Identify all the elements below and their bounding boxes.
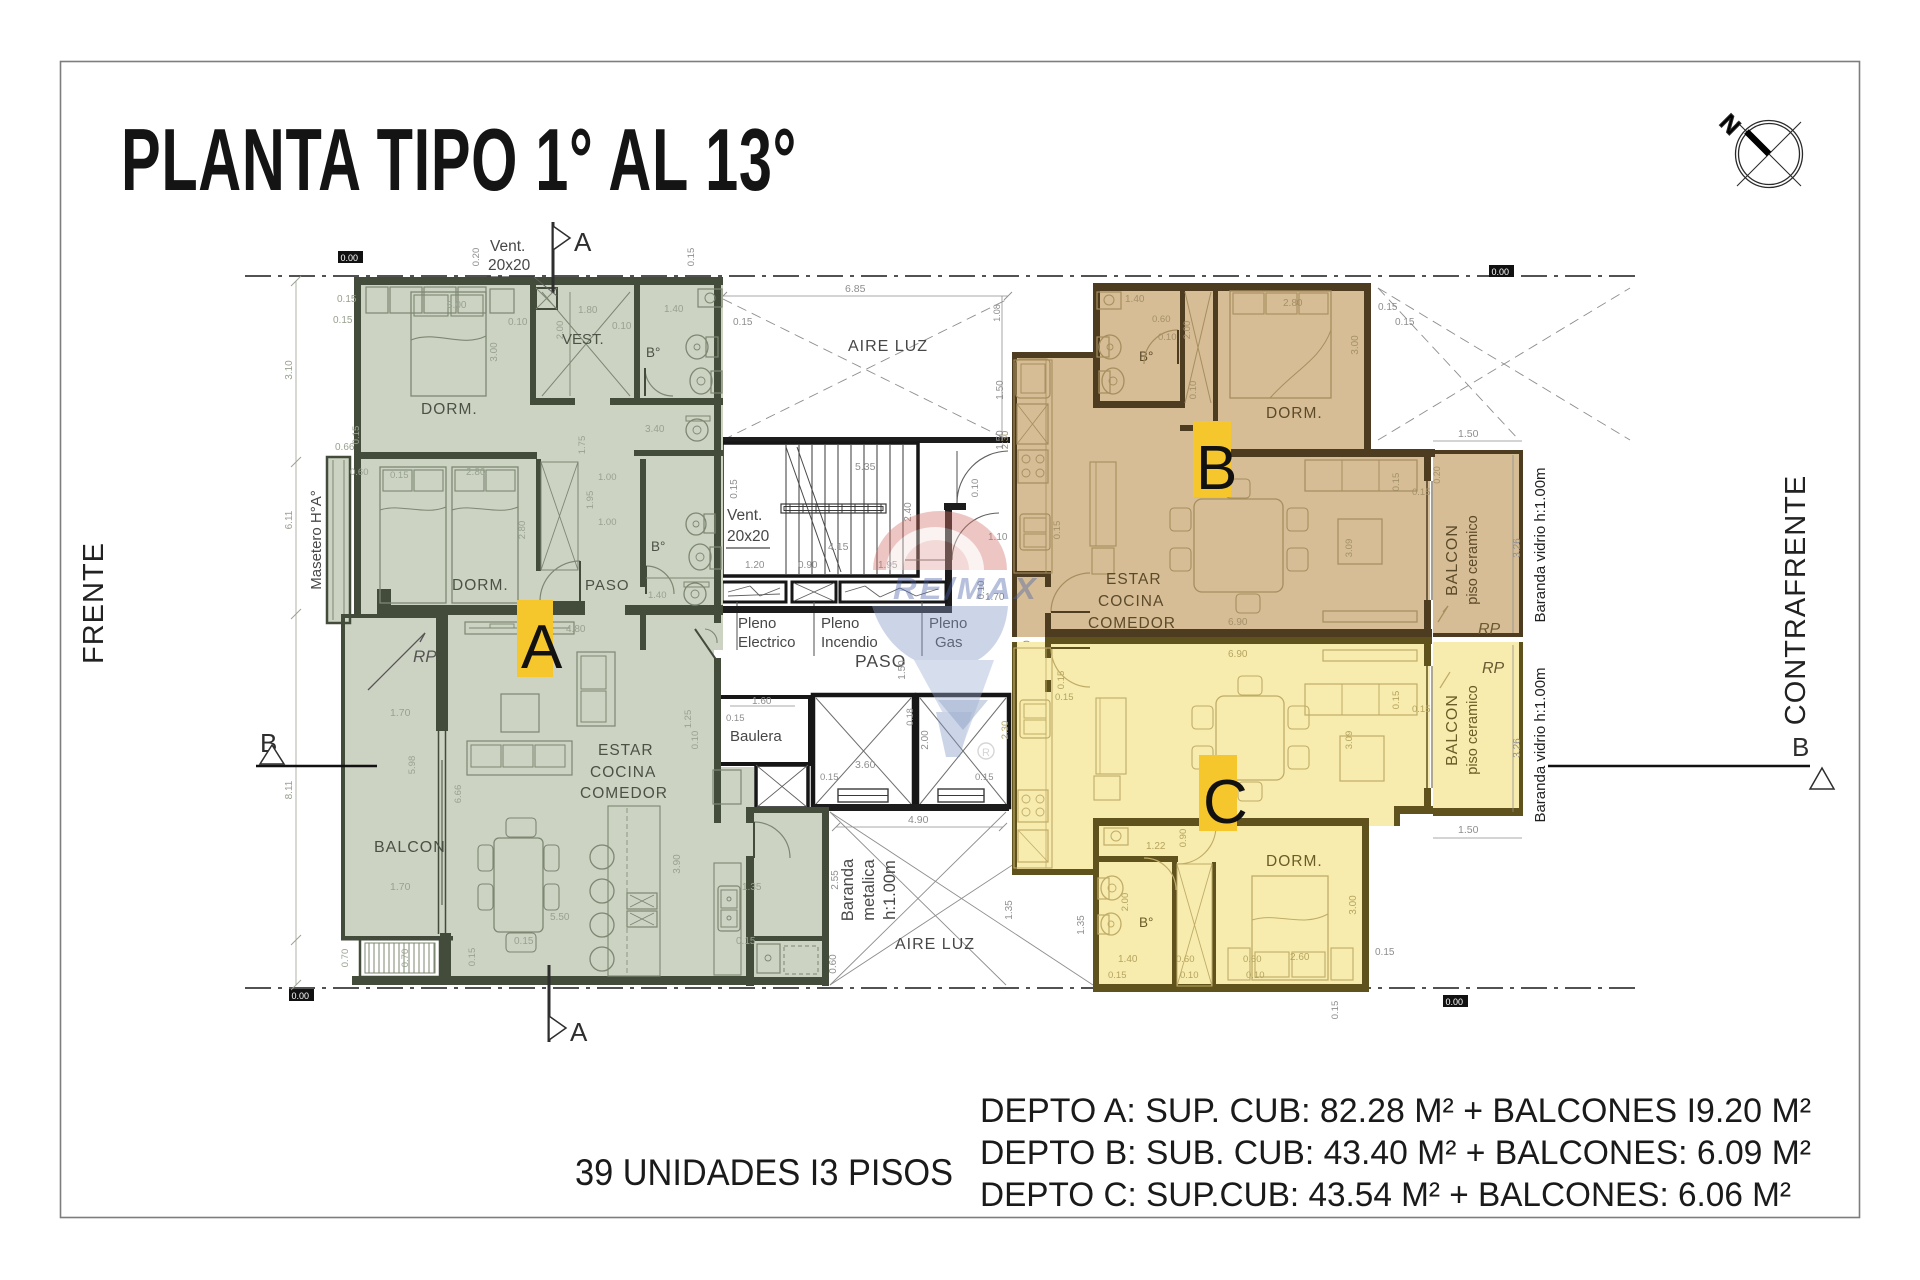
svg-text:Vent.: Vent. bbox=[727, 507, 762, 524]
svg-text:0.10: 0.10 bbox=[508, 317, 528, 328]
svg-text:h:1.00m: h:1.00m bbox=[881, 860, 899, 920]
svg-text:0.15: 0.15 bbox=[1391, 473, 1402, 492]
svg-text:3.00: 3.00 bbox=[1348, 895, 1359, 915]
svg-text:0.70: 0.70 bbox=[340, 949, 351, 968]
svg-text:piso ceramico: piso ceramico bbox=[1465, 515, 1481, 604]
svg-text:Masetero H°A°: Masetero H°A° bbox=[308, 490, 325, 590]
svg-text:COCINA: COCINA bbox=[590, 764, 656, 781]
svg-text:2.00: 2.00 bbox=[1182, 321, 1193, 340]
svg-text:A: A bbox=[521, 613, 563, 682]
svg-text:0.15: 0.15 bbox=[1391, 691, 1402, 710]
svg-text:2.60: 2.60 bbox=[1290, 952, 1310, 963]
svg-text:2.80: 2.80 bbox=[1283, 298, 1303, 309]
svg-text:1.75: 1.75 bbox=[577, 436, 588, 455]
svg-text:0.60: 0.60 bbox=[1243, 954, 1262, 965]
svg-text:0.15: 0.15 bbox=[686, 248, 697, 267]
svg-text:DEPTO C: SUP.CUB: 43.54 M² + B: DEPTO C: SUP.CUB: 43.54 M² + BALCONES: 6… bbox=[980, 1176, 1791, 1214]
svg-text:0.66: 0.66 bbox=[335, 442, 355, 453]
svg-text:2.80: 2.80 bbox=[466, 467, 486, 478]
svg-text:1.35: 1.35 bbox=[1004, 900, 1015, 920]
svg-text:6.85: 6.85 bbox=[845, 283, 866, 295]
svg-text:A: A bbox=[570, 1017, 588, 1047]
svg-text:8.11: 8.11 bbox=[284, 780, 295, 799]
svg-text:0.60: 0.60 bbox=[1176, 954, 1195, 965]
svg-text:B°: B° bbox=[1139, 915, 1153, 930]
svg-text:PASO: PASO bbox=[585, 577, 630, 594]
svg-text:0.15: 0.15 bbox=[1378, 302, 1398, 313]
svg-text:0.10: 0.10 bbox=[1180, 970, 1199, 981]
svg-text:0.15: 0.15 bbox=[1056, 671, 1067, 690]
svg-text:1.20: 1.20 bbox=[745, 560, 765, 571]
svg-text:1.50: 1.50 bbox=[995, 430, 1006, 450]
svg-text:0.10: 0.10 bbox=[1158, 332, 1177, 343]
svg-text:0.15: 0.15 bbox=[726, 713, 745, 724]
svg-text:3.09: 3.09 bbox=[1344, 539, 1355, 558]
svg-text:1.50: 1.50 bbox=[897, 660, 908, 680]
svg-text:R: R bbox=[982, 747, 990, 759]
svg-text:0.20: 0.20 bbox=[1432, 466, 1442, 484]
svg-text:1.50: 1.50 bbox=[1458, 428, 1479, 440]
svg-text:0.15: 0.15 bbox=[337, 294, 357, 305]
svg-text:6.90: 6.90 bbox=[1228, 617, 1248, 628]
svg-text:0.15: 0.15 bbox=[1395, 317, 1415, 328]
svg-text:piso ceramico: piso ceramico bbox=[1465, 685, 1481, 774]
svg-text:0.70: 0.70 bbox=[400, 949, 411, 968]
svg-text:Baranda vidrio h:1.00m: Baranda vidrio h:1.00m bbox=[1532, 667, 1549, 822]
svg-text:C: C bbox=[1203, 768, 1248, 837]
svg-text:Pleno: Pleno bbox=[738, 615, 776, 632]
svg-text:1.00: 1.00 bbox=[598, 472, 617, 483]
svg-text:3.40: 3.40 bbox=[645, 424, 665, 435]
svg-text:39 UNIDADES I3 PISOS: 39 UNIDADES I3 PISOS bbox=[575, 1152, 953, 1193]
svg-text:ESTAR: ESTAR bbox=[1106, 571, 1162, 588]
svg-text:0.15: 0.15 bbox=[733, 317, 753, 328]
svg-text:1.40: 1.40 bbox=[1125, 294, 1145, 305]
svg-text:RP: RP bbox=[413, 647, 437, 666]
svg-text:1.22: 1.22 bbox=[1146, 841, 1166, 852]
svg-text:Incendio: Incendio bbox=[821, 634, 878, 651]
svg-text:0.15: 0.15 bbox=[1412, 487, 1431, 498]
svg-text:0.60: 0.60 bbox=[828, 954, 839, 974]
svg-text:Baulera: Baulera bbox=[730, 728, 782, 745]
svg-text:Baranda vidrio h:1.00m: Baranda vidrio h:1.00m bbox=[1532, 467, 1549, 622]
svg-text:2.80: 2.80 bbox=[517, 521, 528, 540]
svg-text:1.40: 1.40 bbox=[1118, 954, 1138, 965]
svg-text:20x20: 20x20 bbox=[488, 257, 531, 274]
svg-text:CONTRAFRENTE: CONTRAFRENTE bbox=[1780, 475, 1812, 725]
svg-text:5.98: 5.98 bbox=[407, 756, 418, 775]
svg-text:0.15: 0.15 bbox=[736, 936, 756, 947]
svg-text:3.00: 3.00 bbox=[447, 300, 467, 311]
svg-text:0.10: 0.10 bbox=[970, 479, 981, 498]
svg-text:0.90: 0.90 bbox=[798, 560, 818, 571]
svg-text:0.15: 0.15 bbox=[729, 479, 740, 499]
svg-text:0.20: 0.20 bbox=[471, 248, 482, 267]
svg-text:0.15: 0.15 bbox=[820, 772, 839, 783]
svg-text:3.09: 3.09 bbox=[1344, 731, 1355, 750]
svg-text:0.18: 0.18 bbox=[905, 708, 915, 726]
svg-text:ESTAR: ESTAR bbox=[598, 742, 654, 759]
svg-text:DORM.: DORM. bbox=[1266, 853, 1323, 870]
svg-text:0.15: 0.15 bbox=[467, 948, 478, 967]
svg-text:0.15: 0.15 bbox=[1108, 970, 1127, 981]
svg-text:1.08: 1.08 bbox=[992, 304, 1002, 322]
svg-text:1.25: 1.25 bbox=[683, 710, 694, 729]
svg-text:0.15: 0.15 bbox=[975, 772, 994, 783]
svg-text:BALCON: BALCON bbox=[1444, 524, 1461, 596]
svg-text:2.00: 2.00 bbox=[555, 321, 566, 340]
svg-text:5.35: 5.35 bbox=[855, 461, 876, 473]
svg-text:0.00: 0.00 bbox=[1446, 997, 1464, 1007]
svg-text:1.80: 1.80 bbox=[578, 305, 598, 316]
svg-text:0.00: 0.00 bbox=[292, 991, 310, 1001]
svg-text:DEPTO B: SUB. CUB: 43.40 M² +: DEPTO B: SUB. CUB: 43.40 M² + BALCONES: … bbox=[980, 1134, 1811, 1172]
svg-text:B°: B° bbox=[646, 345, 660, 360]
svg-text:1.70: 1.70 bbox=[390, 707, 411, 719]
svg-text:3.90: 3.90 bbox=[672, 854, 683, 874]
svg-text:1.35: 1.35 bbox=[1076, 915, 1087, 935]
svg-text:1.95: 1.95 bbox=[585, 491, 596, 510]
svg-text:20x20: 20x20 bbox=[727, 528, 770, 545]
svg-text:A: A bbox=[574, 227, 592, 257]
svg-text:0.15: 0.15 bbox=[333, 315, 353, 326]
svg-text:4.80: 4.80 bbox=[566, 624, 586, 635]
svg-text:2.00: 2.00 bbox=[920, 730, 931, 750]
svg-text:0.00: 0.00 bbox=[1492, 267, 1510, 277]
svg-text:2.30: 2.30 bbox=[1000, 721, 1011, 740]
svg-text:3.60: 3.60 bbox=[855, 759, 876, 771]
svg-text:6.11: 6.11 bbox=[284, 510, 295, 529]
svg-text:Baranda: Baranda bbox=[839, 858, 857, 921]
svg-text:Electrico: Electrico bbox=[738, 634, 796, 651]
svg-text:3.10: 3.10 bbox=[284, 360, 295, 380]
svg-text:2.00: 2.00 bbox=[1120, 893, 1131, 912]
svg-text:4.90: 4.90 bbox=[908, 814, 929, 826]
svg-text:1.00: 1.00 bbox=[598, 517, 617, 528]
svg-text:B: B bbox=[1792, 732, 1809, 762]
svg-text:3.26: 3.26 bbox=[1512, 538, 1523, 558]
svg-text:0.15: 0.15 bbox=[1375, 947, 1395, 958]
svg-text:3.00: 3.00 bbox=[1350, 335, 1361, 355]
svg-text:AIRE LUZ: AIRE LUZ bbox=[895, 936, 975, 953]
svg-text:0.15: 0.15 bbox=[1330, 1001, 1341, 1020]
svg-text:0.10: 0.10 bbox=[690, 731, 701, 750]
svg-text:0.00: 0.00 bbox=[341, 253, 359, 263]
svg-text:3.00: 3.00 bbox=[489, 342, 500, 362]
svg-text:FRENTE: FRENTE bbox=[78, 542, 110, 664]
svg-text:0.10: 0.10 bbox=[612, 321, 632, 332]
svg-text:0.90: 0.90 bbox=[1178, 829, 1189, 848]
svg-text:BALCON: BALCON bbox=[374, 839, 446, 856]
svg-text:5.50: 5.50 bbox=[550, 912, 570, 923]
svg-text:0.60: 0.60 bbox=[1152, 314, 1171, 325]
svg-text:0.15: 0.15 bbox=[1412, 704, 1431, 715]
svg-text:COMEDOR: COMEDOR bbox=[580, 785, 668, 802]
svg-text:0.15: 0.15 bbox=[1052, 521, 1063, 540]
svg-text:VEST.: VEST. bbox=[562, 331, 604, 348]
svg-text:1.40: 1.40 bbox=[664, 304, 684, 315]
svg-text:0.60: 0.60 bbox=[350, 467, 369, 478]
svg-text:1.70: 1.70 bbox=[390, 881, 411, 893]
svg-text:RP: RP bbox=[1478, 621, 1501, 638]
svg-text:DORM.: DORM. bbox=[452, 577, 509, 594]
svg-text:1.60: 1.60 bbox=[752, 696, 772, 707]
svg-text:Vent.: Vent. bbox=[490, 238, 525, 255]
svg-text:4.15: 4.15 bbox=[828, 541, 849, 553]
svg-text:DEPTO A: SUP. CUB: 82.28 M² +: DEPTO A: SUP. CUB: 82.28 M² + BALCONES I… bbox=[980, 1092, 1811, 1130]
svg-text:0.10: 0.10 bbox=[1246, 970, 1265, 981]
svg-text:B: B bbox=[1196, 434, 1237, 503]
svg-text:1.40: 1.40 bbox=[648, 590, 667, 601]
svg-text:DORM.: DORM. bbox=[421, 401, 478, 418]
svg-text:BALCON: BALCON bbox=[1444, 694, 1461, 766]
svg-text:RP: RP bbox=[1482, 660, 1505, 677]
svg-text:RE/MAX: RE/MAX bbox=[893, 571, 1039, 606]
svg-text:COCINA: COCINA bbox=[1098, 593, 1164, 610]
svg-text:COMEDOR: COMEDOR bbox=[1088, 615, 1176, 632]
svg-text:6.66: 6.66 bbox=[453, 785, 464, 804]
svg-text:1.50: 1.50 bbox=[995, 380, 1006, 400]
svg-text:DORM.: DORM. bbox=[1266, 405, 1323, 422]
svg-text:0.15: 0.15 bbox=[514, 936, 534, 947]
svg-text:1.50: 1.50 bbox=[1458, 824, 1479, 836]
svg-text:AIRE LUZ: AIRE LUZ bbox=[848, 338, 928, 355]
svg-text:1.35: 1.35 bbox=[742, 882, 762, 893]
svg-text:B°: B° bbox=[651, 539, 665, 554]
svg-text:metalica: metalica bbox=[860, 858, 878, 920]
svg-text:6.90: 6.90 bbox=[1228, 649, 1248, 660]
svg-text:0.15: 0.15 bbox=[1055, 692, 1074, 703]
svg-text:PLANTA TIPO 1° AL 13°: PLANTA TIPO 1° AL 13° bbox=[121, 110, 797, 209]
svg-text:3.26: 3.26 bbox=[1512, 738, 1523, 758]
svg-text:Pleno: Pleno bbox=[821, 615, 859, 632]
svg-text:0.15: 0.15 bbox=[390, 470, 409, 481]
